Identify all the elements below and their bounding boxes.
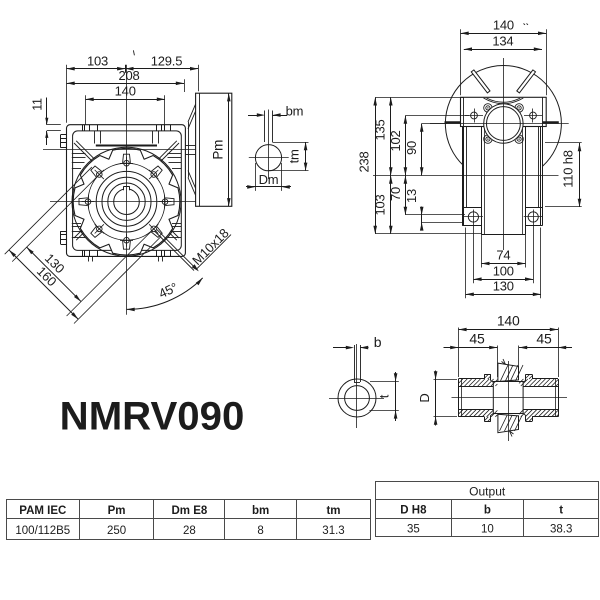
svg-text:100/112B5: 100/112B5 <box>15 525 70 537</box>
svg-text:140: 140 <box>115 84 136 99</box>
svg-text:b: b <box>374 334 382 350</box>
svg-text:31.3: 31.3 <box>322 525 344 537</box>
svg-text:74: 74 <box>496 248 510 263</box>
svg-text:Pm: Pm <box>108 505 126 517</box>
svg-text:103: 103 <box>372 194 387 215</box>
svg-text:10: 10 <box>481 524 494 536</box>
svg-text:28: 28 <box>183 525 196 537</box>
svg-text:134: 134 <box>492 33 513 48</box>
svg-text:D: D <box>417 393 432 402</box>
svg-text:140: 140 <box>497 313 520 329</box>
svg-text:238: 238 <box>357 151 372 172</box>
svg-text:103: 103 <box>87 53 108 68</box>
svg-text:250: 250 <box>107 525 126 537</box>
svg-text:135: 135 <box>372 119 387 140</box>
svg-text:NMRV090: NMRV090 <box>60 394 245 439</box>
svg-text:35: 35 <box>407 524 420 536</box>
svg-text:t: t <box>559 505 563 517</box>
svg-text:110 h8: 110 h8 <box>561 150 576 188</box>
svg-text:Output: Output <box>469 484 506 498</box>
svg-text:208: 208 <box>118 68 139 83</box>
svg-text:Dm E8: Dm E8 <box>172 505 208 517</box>
svg-text:11: 11 <box>31 98 45 111</box>
svg-text:D H8: D H8 <box>400 505 427 517</box>
svg-text:Dm: Dm <box>259 172 279 187</box>
svg-text:45: 45 <box>536 331 552 347</box>
svg-text:bm: bm <box>252 505 269 517</box>
svg-text:b: b <box>484 505 491 517</box>
svg-text:Pm: Pm <box>211 140 226 160</box>
svg-text:tm: tm <box>326 505 340 517</box>
svg-text:t: t <box>377 394 392 398</box>
svg-text:13: 13 <box>404 189 419 203</box>
svg-text:140: 140 <box>493 18 514 33</box>
svg-text:90: 90 <box>404 141 419 155</box>
svg-text:129.5: 129.5 <box>151 53 183 68</box>
svg-text:130: 130 <box>493 279 514 294</box>
svg-text:100: 100 <box>493 263 514 278</box>
svg-text:70: 70 <box>388 187 403 201</box>
svg-text:38.3: 38.3 <box>550 524 572 536</box>
svg-text:PAM IEC: PAM IEC <box>19 505 66 517</box>
svg-text:102: 102 <box>388 130 403 151</box>
svg-text:tm: tm <box>287 149 302 163</box>
svg-text:bm: bm <box>286 104 304 119</box>
svg-text:8: 8 <box>257 525 263 537</box>
svg-text:45: 45 <box>469 331 485 347</box>
